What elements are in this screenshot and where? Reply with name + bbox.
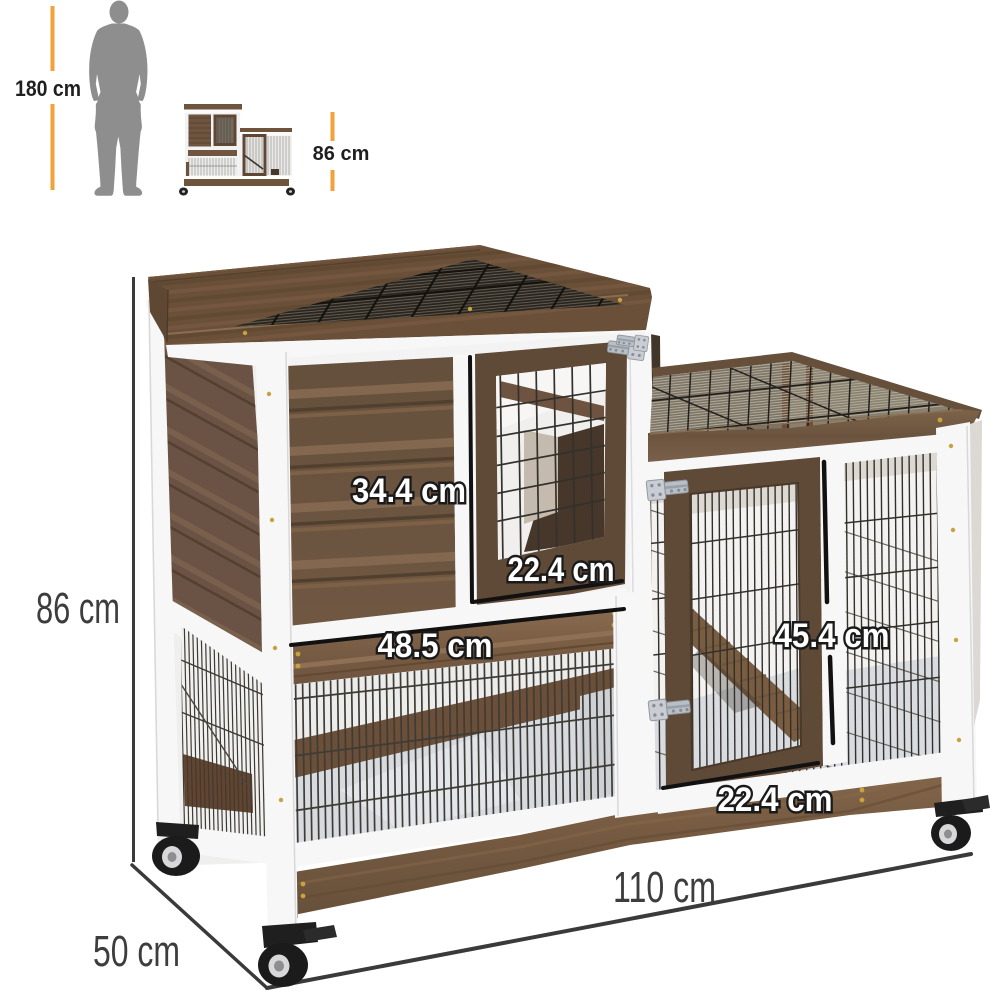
svg-text:22.4 cm: 22.4 cm xyxy=(718,781,833,819)
svg-text:180 cm: 180 cm xyxy=(15,76,81,101)
svg-text:45.4 cm: 45.4 cm xyxy=(775,617,890,655)
svg-text:50 cm: 50 cm xyxy=(93,927,180,976)
svg-text:86 cm: 86 cm xyxy=(313,143,370,165)
svg-text:34.4 cm: 34.4 cm xyxy=(352,472,466,510)
svg-text:22.4 cm: 22.4 cm xyxy=(508,551,615,589)
svg-text:110 cm: 110 cm xyxy=(613,863,716,912)
svg-text:86 cm: 86 cm xyxy=(36,584,120,633)
svg-text:48.5 cm: 48.5 cm xyxy=(378,627,493,665)
